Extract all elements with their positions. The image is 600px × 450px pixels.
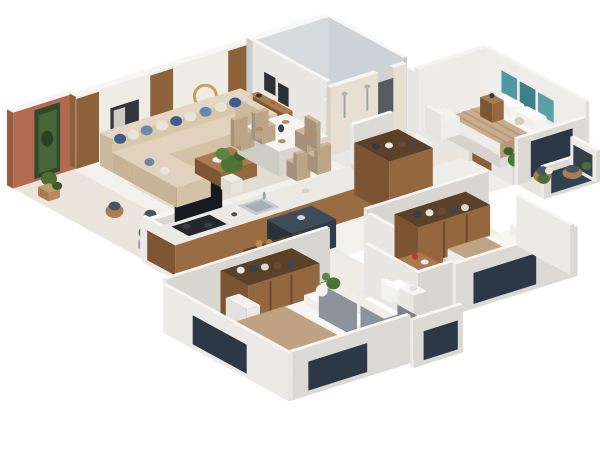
- nightstand-lamp: [489, 93, 494, 98]
- sofa-pillow: [200, 107, 212, 117]
- master-front-wall: [515, 137, 519, 185]
- wardrobe-clothes: [288, 260, 296, 267]
- balcony-lounge-cushion: [566, 165, 580, 173]
- wardrobe-clothes: [273, 262, 281, 269]
- living-feature-wall: [70, 94, 76, 169]
- sofa-pillow: [141, 125, 153, 135]
- wardrobe2-divider: [443, 222, 445, 265]
- sofa-pillow: [144, 158, 154, 166]
- desk-white-decor: [421, 260, 429, 265]
- dining-chair-back: [317, 122, 321, 150]
- master-cushion: [514, 117, 524, 125]
- floor-plan-render-page: [0, 0, 600, 450]
- balcony-brick-wall: [7, 109, 13, 188]
- sofa-pillow: [160, 167, 170, 175]
- island-decor: [297, 215, 305, 220]
- sofa-pillow: [156, 121, 168, 131]
- bath1-partition: [350, 123, 353, 165]
- master-armchair-back: [441, 113, 445, 140]
- bed2-right-wall: [570, 224, 574, 275]
- counter-bowl: [301, 188, 309, 193]
- dining-chair-back: [252, 112, 256, 141]
- master-back-wall: [415, 67, 419, 131]
- nightstand-1: [492, 100, 503, 123]
- wardrobe-clothes: [237, 267, 245, 274]
- vertical-garden-leaf: [41, 131, 53, 147]
- wardrobe-clothes: [413, 211, 421, 218]
- console-decor-orange: [270, 100, 275, 104]
- wardrobe-clothes: [438, 208, 446, 215]
- counter-decor: [231, 212, 237, 216]
- placemat: [255, 127, 263, 131]
- dining-chair-back: [231, 118, 235, 147]
- burner-1: [182, 224, 190, 229]
- sofa-backrest: [100, 133, 112, 173]
- bath2-sink: [414, 291, 427, 315]
- dining-chair-back: [293, 153, 297, 182]
- balcony-plant-top: [52, 182, 62, 190]
- wardrobe-clothes: [372, 143, 380, 149]
- bed3-front-wall: [289, 350, 293, 400]
- bath2-basin: [409, 286, 417, 292]
- wicker-chair-1-cushion: [109, 202, 121, 211]
- wardrobe-clothes: [249, 265, 257, 272]
- wardrobe-clothes: [261, 264, 269, 271]
- sofa-pillow: [170, 116, 182, 126]
- wardrobe-clothes: [398, 141, 406, 147]
- master-balcony-parapet-right: [596, 150, 600, 183]
- shower-rail-1: [344, 94, 346, 119]
- sofa-pillow: [229, 98, 241, 108]
- sofa-pillow: [215, 102, 227, 112]
- desk-red-decor: [412, 254, 418, 260]
- wardrobe-clothes: [461, 204, 469, 211]
- sofa-pillow: [114, 134, 126, 144]
- placemat: [304, 132, 312, 136]
- placemat: [278, 139, 286, 143]
- balcony-table: [545, 167, 553, 174]
- kitchen-faucet: [263, 192, 266, 200]
- shower-head-1: [342, 92, 348, 96]
- wardrobe-clothes: [426, 209, 434, 216]
- console-decor-dark: [256, 94, 262, 98]
- burner-2: [204, 223, 212, 228]
- ball-lamp: [316, 285, 328, 297]
- shower-rail-2: [366, 86, 368, 111]
- balcony-plant-right: [538, 174, 550, 184]
- wood-panel-left: [76, 92, 99, 169]
- wardrobe-clothes: [385, 142, 393, 148]
- dining-chair-back: [255, 110, 268, 141]
- sofa-pillow: [184, 112, 196, 122]
- wardrobe-clothes: [410, 141, 416, 147]
- master-plant-2: [504, 147, 514, 155]
- sofa-pillow: [127, 130, 139, 140]
- floor-plan-3d-render: [0, 0, 600, 450]
- dining-chair-back: [234, 116, 247, 147]
- balcony-side-table: [120, 217, 130, 225]
- shower-head-2: [364, 85, 370, 89]
- bed3-right-wall: [410, 318, 414, 368]
- balcony-plant-right-2: [582, 162, 592, 170]
- plant-living-2: [216, 148, 230, 160]
- bath1-tiled-wall-right: [394, 64, 407, 136]
- wardrobe-clothes: [449, 206, 457, 213]
- dining-vase: [278, 124, 284, 132]
- placemat: [282, 120, 290, 124]
- plant-bed3-2: [322, 273, 330, 281]
- toilet-2-seat: [393, 280, 404, 288]
